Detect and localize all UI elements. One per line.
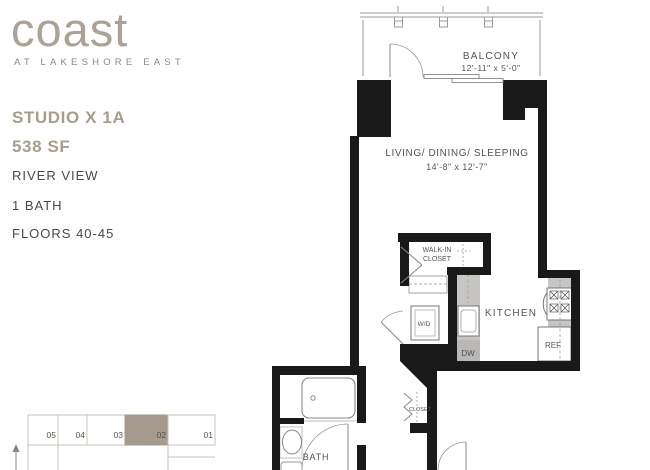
balcony-door (390, 44, 423, 77)
closet-rod (409, 276, 447, 293)
entry-door (438, 442, 466, 470)
kitchen-sink (458, 306, 479, 336)
keyplan-unit-label-04: 04 (76, 430, 86, 440)
sliding-door (424, 75, 503, 83)
living-label: LIVING/ DINING/ SLEEPING (385, 148, 528, 159)
keyplan: 05 04 03 02 01 (5, 398, 220, 470)
bathtub (280, 378, 357, 421)
unit-area: 538 SF (12, 137, 70, 157)
stove (543, 288, 572, 320)
walkin-closet-label-2: CLOSET (423, 256, 452, 263)
keyplan-unit-label-02: 02 (157, 430, 167, 440)
north-arrow (13, 444, 20, 470)
bath-door (302, 424, 348, 470)
keyplan-unit-label-03: 03 (114, 430, 124, 440)
living-dims: 14'-8" x 12'-7" (426, 162, 488, 172)
closet-label: CLOSET (409, 407, 432, 413)
dw-label: DW (461, 349, 475, 358)
bath-label: BATH (303, 452, 330, 462)
keyplan-cell-lower-left (28, 445, 58, 470)
floorplan-page: coast AT LAKESHORE EAST STUDIO X 1A 538 … (0, 0, 650, 470)
coast-logo: coast (11, 6, 128, 53)
brand-tagline: AT LAKESHORE EAST (14, 57, 185, 68)
unit-name: STUDIO X 1A (12, 108, 125, 128)
balcony-label: BALCONY (463, 51, 519, 62)
kitchen-label: KITCHEN (485, 308, 537, 319)
floorplan: BALCONY 12'-11" x 5'-0" LIVING/ DINING/ … (255, 0, 595, 470)
toilet (280, 427, 302, 458)
ref-label: REF (545, 341, 561, 350)
wd-door (381, 311, 403, 344)
wd-label: W/D (418, 321, 431, 328)
balcony-dims: 12'-11" x 5'-0" (461, 63, 520, 73)
unit-view: RIVER VIEW (12, 168, 99, 183)
unit-bath: 1 BATH (12, 198, 63, 213)
walkin-closet-label-1: WALK-IN (423, 247, 452, 254)
vanity (281, 462, 302, 470)
keyplan-unit-label-05: 05 (47, 430, 57, 440)
unit-floors: FLOORS 40-45 (12, 226, 114, 241)
keyplan-unit-label-01: 01 (204, 430, 214, 440)
